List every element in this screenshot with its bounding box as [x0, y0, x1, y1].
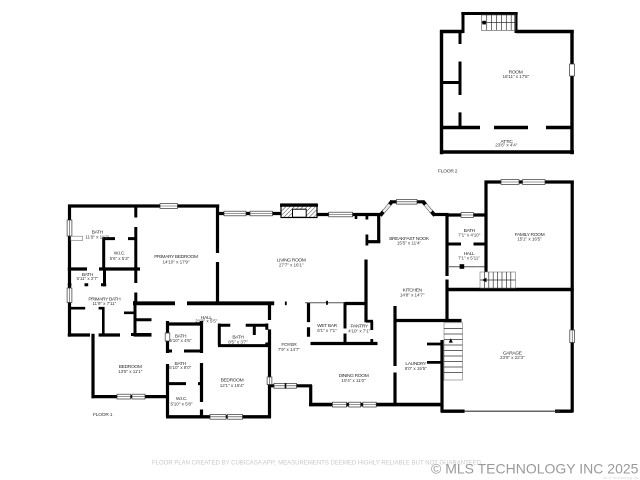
svg-text:5'10" x 5'8": 5'10" x 5'8": [170, 402, 192, 407]
svg-text:23'6" x 4'4": 23'6" x 4'4": [495, 143, 517, 148]
svg-text:23'6" x 22'3": 23'6" x 22'3": [500, 355, 525, 360]
svg-text:8'5" x 3'7": 8'5" x 3'7": [228, 339, 248, 344]
svg-text:11'9" x 11'2": 11'9" x 11'2": [85, 234, 109, 239]
svg-text:5'6" x 5'3": 5'6" x 5'3": [110, 256, 130, 261]
svg-text:11'9" x 7'11": 11'9" x 7'11": [92, 301, 116, 306]
svg-text:21'8" x 5'5": 21'8" x 5'5": [195, 319, 217, 324]
svg-text:14'10" x 17'9": 14'10" x 17'9": [162, 260, 189, 265]
svg-text:5'10" x 4'6": 5'10" x 4'6": [169, 338, 191, 343]
svg-text:14'8" x 14'7": 14'8" x 14'7": [400, 292, 425, 297]
svg-text:12'1" x 15'4": 12'1" x 15'4": [220, 383, 245, 388]
svg-text:5'10" x 8'0": 5'10" x 8'0": [169, 365, 191, 370]
svg-text:15'1" x 16'5": 15'1" x 16'5": [517, 236, 542, 241]
svg-text:MLS Technology Inc: MLS Technology Inc: [603, 475, 639, 480]
svg-text:27'7" x 16'1": 27'7" x 16'1": [279, 263, 304, 268]
svg-text:13'5" x 11'1": 13'5" x 11'1": [118, 369, 143, 374]
svg-text:10'4" x 11'0": 10'4" x 11'0": [341, 378, 366, 383]
svg-text:15'5" x 11'4": 15'5" x 11'4": [397, 241, 422, 246]
svg-text:FLOOR 2: FLOOR 2: [438, 169, 458, 175]
svg-text:7'9" x 14'7": 7'9" x 14'7": [278, 347, 300, 352]
svg-text:5'11" x 2'7": 5'11" x 2'7": [77, 276, 99, 281]
svg-text:FLOOR 1: FLOOR 1: [93, 412, 113, 418]
svg-text:7'1" x 5'11": 7'1" x 5'11": [458, 256, 480, 261]
svg-text:18'11" x 17'8": 18'11" x 17'8": [502, 74, 529, 79]
svg-text:4'10" x 7'1": 4'10" x 7'1": [348, 329, 370, 334]
svg-text:8'0" x 15'5": 8'0" x 15'5": [405, 366, 427, 371]
svg-text:6'1" x 7'1": 6'1" x 7'1": [317, 328, 337, 333]
svg-text:7'1" x 4'10": 7'1" x 4'10": [458, 232, 480, 237]
